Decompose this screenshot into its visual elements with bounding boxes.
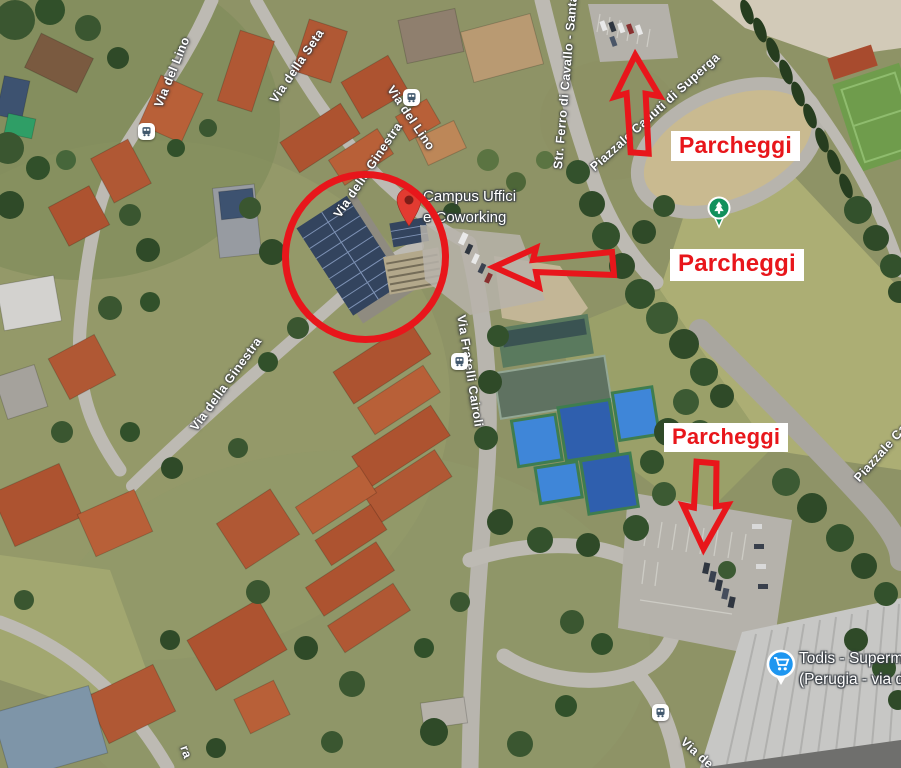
todis-label-line1: Todis - Superme xyxy=(799,648,901,669)
arrow-up-annotation xyxy=(606,45,670,165)
park-poi-icon[interactable] xyxy=(706,196,732,230)
supermarket-poi-label: Todis - Superme (Perugia - via de xyxy=(799,648,901,690)
todis-label-line2: (Perugia - via de xyxy=(799,669,901,690)
arrow-left-annotation xyxy=(486,240,620,294)
supermarket-poi-icon[interactable] xyxy=(764,648,798,690)
arrow-down-annotation xyxy=(672,451,738,561)
campus-label-line1: Campus Uffici xyxy=(423,186,516,207)
highlight-circle-annotation xyxy=(282,171,449,343)
satellite-map-view: Via del LinoVia della SetaVia del LinoVi… xyxy=(0,0,901,768)
